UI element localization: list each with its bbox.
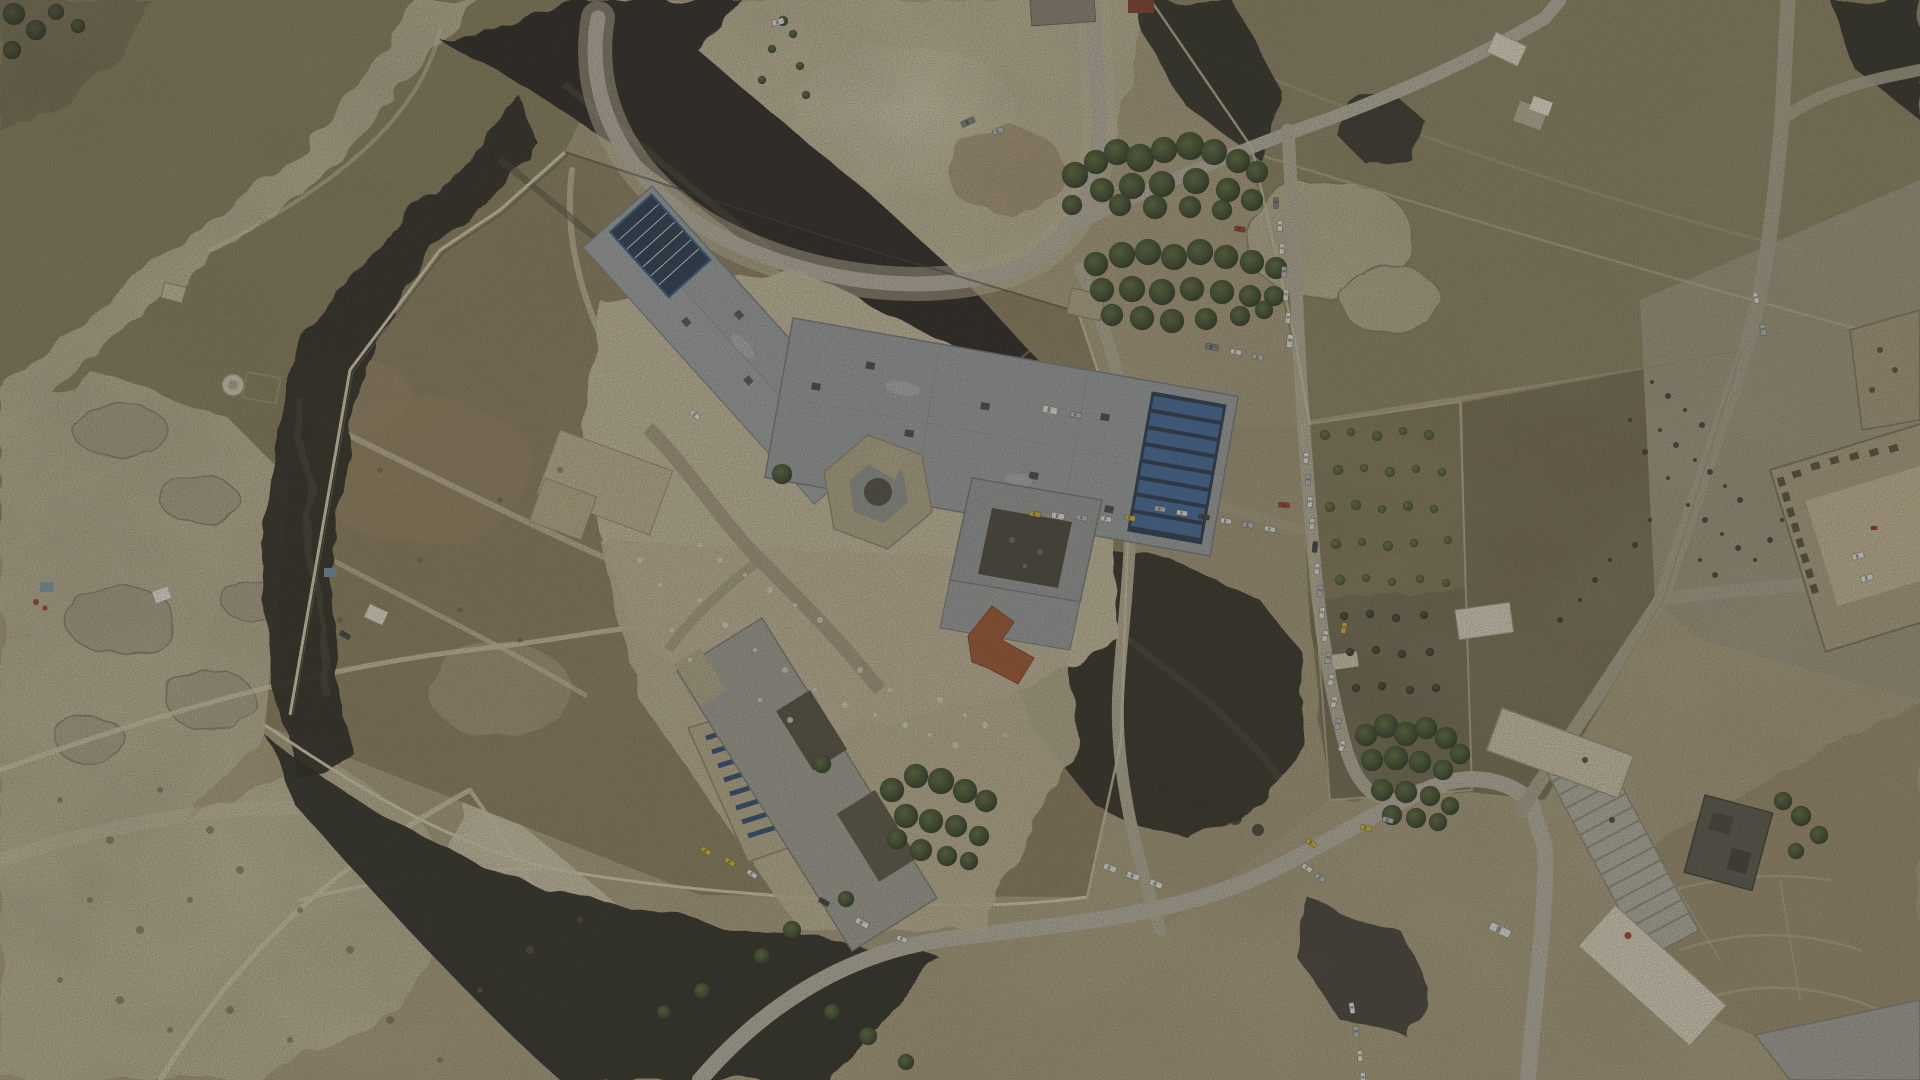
vignette-overlay: [0, 0, 1920, 1080]
aerial-photo-stage: [0, 0, 1920, 1080]
aerial-photo-of-prison-compound: [0, 0, 1920, 1080]
